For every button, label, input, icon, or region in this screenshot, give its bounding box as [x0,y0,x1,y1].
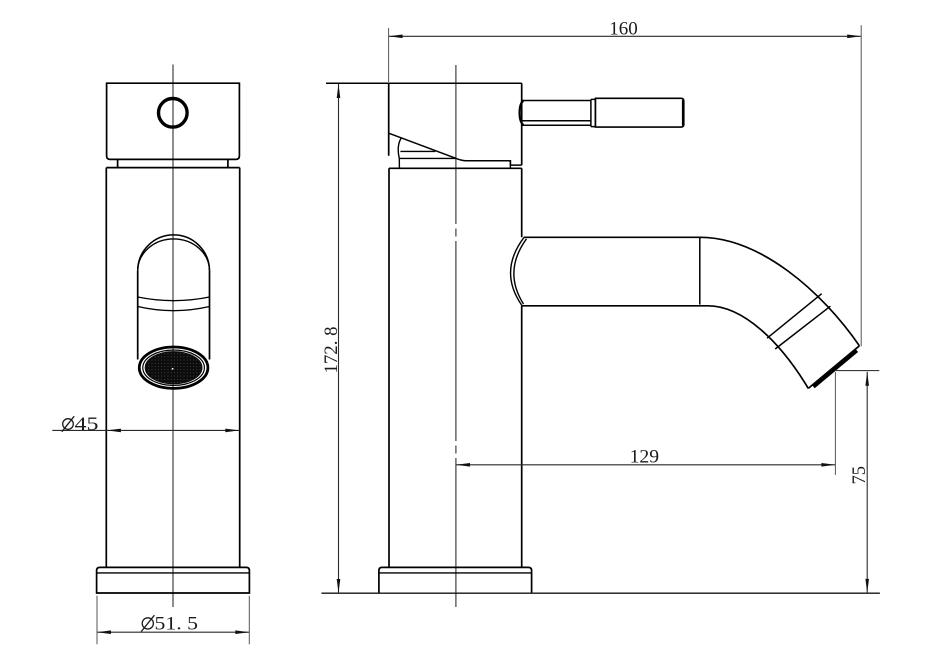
svg-text:51. 5: 51. 5 [155,613,199,634]
svg-text:160: 160 [609,18,638,39]
svg-text:172. 8: 172. 8 [321,327,342,374]
svg-text:45: 45 [75,414,99,435]
svg-text:75: 75 [849,466,870,485]
svg-text:129: 129 [630,446,660,467]
